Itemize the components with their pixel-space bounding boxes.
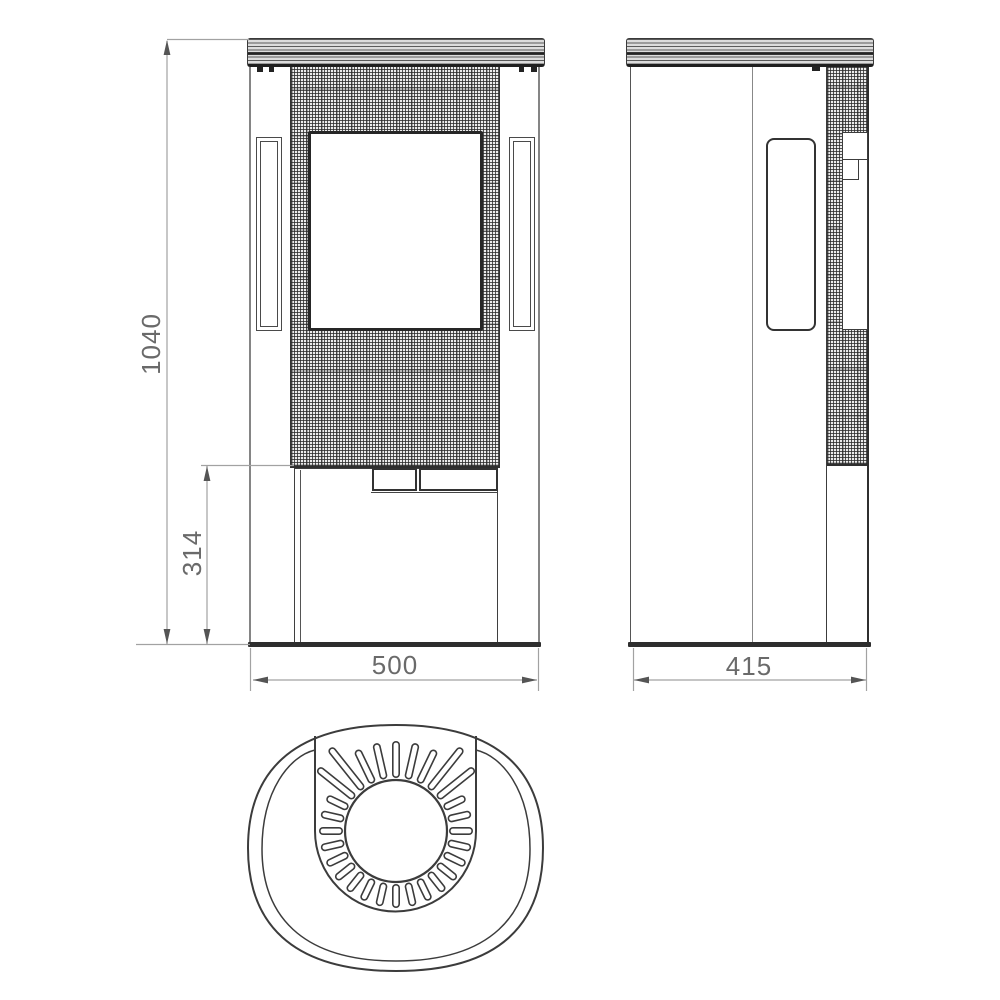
- vent-slot: [432, 876, 442, 889]
- vent-slot: [330, 799, 344, 806]
- side-handle-slot: [766, 138, 816, 331]
- vent-slot: [409, 747, 415, 775]
- vent-slot: [452, 815, 468, 819]
- vent-slot: [377, 747, 383, 775]
- vent-slot: [325, 815, 341, 819]
- vent-slot: [447, 856, 461, 863]
- vent-slot: [339, 867, 352, 877]
- vent-slot: [409, 747, 415, 775]
- front-vent-slot-left: [256, 137, 282, 331]
- top-view-outer-outline: [248, 725, 543, 971]
- vent-slot: [421, 882, 428, 896]
- air-control-knob-left: [372, 468, 417, 491]
- technical-drawing-canvas: 1040 314 500 415: [0, 0, 1000, 1000]
- dimension-base-height: 314: [179, 530, 205, 576]
- vent-slot: [432, 751, 460, 786]
- side-latch-cutout: [842, 132, 868, 330]
- vent-slot: [380, 887, 384, 903]
- vent-slot: [321, 771, 351, 795]
- side-top-plate: [626, 38, 874, 67]
- vent-slot: [325, 844, 341, 848]
- vent-slot: [452, 815, 468, 819]
- vent-slot: [377, 747, 383, 775]
- top-view-inner-outline: [262, 750, 530, 961]
- vent-slot: [421, 882, 428, 896]
- top-plate-foot: [269, 67, 274, 72]
- top-plate-foot: [531, 67, 537, 72]
- vent-slot: [330, 856, 344, 863]
- vent-slot: [325, 844, 341, 848]
- vent-slot: [364, 882, 371, 896]
- dimension-side-depth: 415: [726, 653, 772, 679]
- vent-slot: [330, 799, 344, 806]
- front-base-door-inner-line: [300, 470, 301, 642]
- vent-slot: [325, 815, 341, 819]
- vent-slot: [350, 876, 360, 889]
- vent-slot: [330, 856, 344, 863]
- vent-slot: [441, 867, 454, 877]
- vent-slot: [359, 754, 372, 780]
- front-vent-slot-right: [509, 137, 535, 331]
- front-base-bar: [248, 642, 541, 647]
- air-control-tray-line: [371, 492, 498, 493]
- vent-slot: [441, 771, 471, 795]
- top-plate-foot: [519, 67, 524, 72]
- vent-slot: [364, 882, 371, 896]
- vent-slot: [447, 799, 461, 806]
- vent-slot: [432, 876, 442, 889]
- vent-slot: [339, 867, 352, 877]
- vent-slot: [432, 751, 460, 786]
- top-plate-foot: [257, 67, 263, 72]
- vent-slot: [447, 799, 461, 806]
- vent-slot: [452, 844, 468, 848]
- vent-slot: [380, 887, 384, 903]
- vent-slot: [441, 771, 471, 795]
- vent-slot: [447, 856, 461, 863]
- front-base-door: [294, 468, 498, 643]
- vent-slot: [421, 754, 434, 780]
- vent-slot: [409, 887, 413, 903]
- vent-slot: [350, 876, 360, 889]
- top-plate-foot: [812, 66, 820, 71]
- vent-slot: [359, 754, 372, 780]
- flue-collar-circle: [345, 780, 447, 882]
- side-latch-box: [842, 159, 859, 180]
- vent-slot: [332, 751, 360, 786]
- vent-slot: [441, 867, 454, 877]
- vent-slot: [321, 771, 351, 795]
- vent-slot: [409, 887, 413, 903]
- dimension-overall-height: 1040: [138, 313, 164, 375]
- top-view: [248, 725, 543, 971]
- top-view-channel: [315, 736, 476, 912]
- side-panel-divider-line: [752, 67, 753, 642]
- front-top-plate: [247, 38, 545, 67]
- side-base-bar: [628, 642, 871, 647]
- vent-slot: [452, 844, 468, 848]
- front-glass-window: [308, 131, 483, 331]
- air-control-knob-right: [419, 468, 498, 491]
- vent-slot: [421, 754, 434, 780]
- vent-slot-ring: [321, 745, 471, 904]
- dimension-front-width: 500: [372, 652, 418, 678]
- vent-slot: [332, 751, 360, 786]
